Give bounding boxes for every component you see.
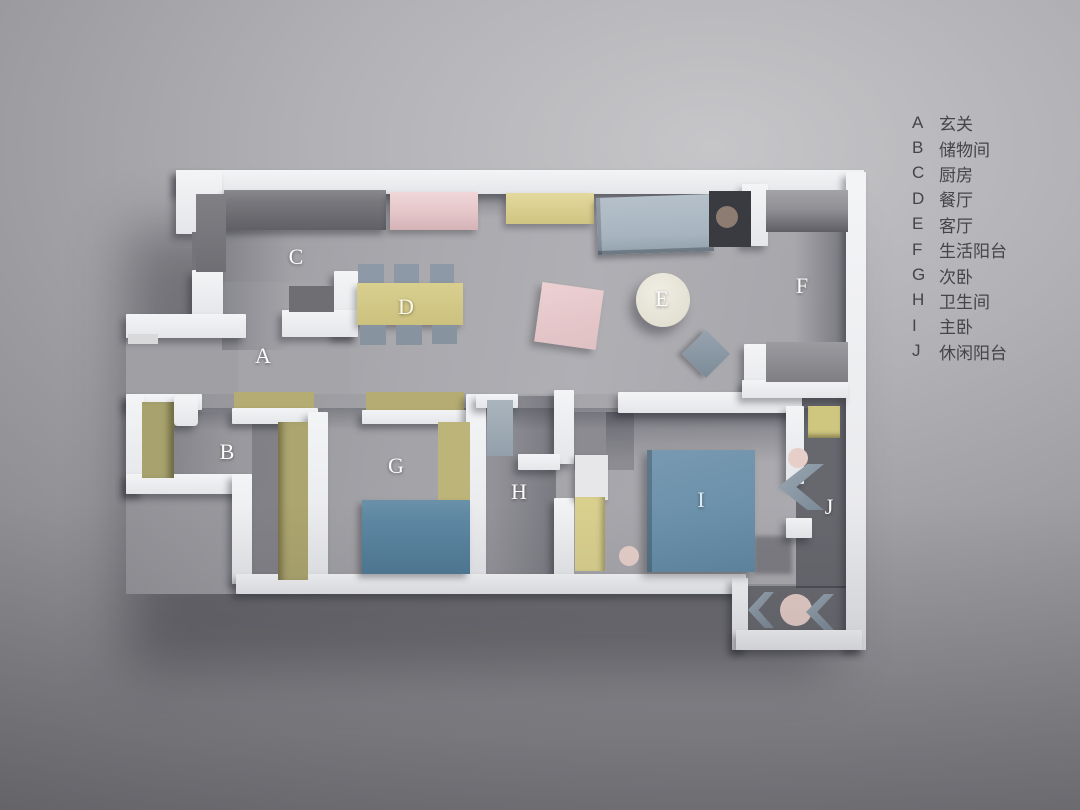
plan-label-entrance: A — [255, 343, 271, 369]
sofa — [596, 194, 714, 255]
legend-letter: E — [912, 214, 939, 234]
bed-second-bedroom — [362, 500, 470, 574]
legend-room-name: 主卧 — [939, 313, 973, 338]
legend-row: H卫生间 — [912, 288, 1007, 313]
legend-row: C厨房 — [912, 161, 1007, 186]
kitchen-sink-recess — [289, 286, 334, 312]
dining-chair — [394, 264, 419, 285]
wall-segment-bottom — [236, 574, 746, 594]
legend-room-name: 厨房 — [939, 161, 973, 186]
plan-label-bedroom2: G — [388, 453, 404, 479]
wall-segment-bedroom2-left — [308, 412, 328, 584]
wall-segment-corridor — [232, 474, 252, 584]
legend-row: J休闲阳台 — [912, 339, 1007, 364]
plan-label-leisure-balcony: J — [825, 494, 834, 520]
nightstand — [619, 546, 639, 566]
legend-row: I主卧 — [912, 313, 1007, 338]
dining-chair — [358, 264, 384, 285]
plan-label-master: I — [697, 487, 704, 513]
wall-segment-balcony-ext-bottom — [736, 630, 862, 650]
wall-post — [174, 396, 198, 426]
wall-segment-left — [192, 270, 223, 318]
wall-segment-bath-nub — [518, 454, 560, 470]
dining-chair — [360, 325, 386, 345]
wall-segment-balcony-bottom — [742, 380, 848, 398]
legend-row: F生活阳台 — [912, 237, 1007, 262]
legend-room-name: 次卧 — [939, 263, 973, 288]
cabinet-pink — [390, 192, 478, 230]
legend-room-name: 储物间 — [939, 136, 990, 161]
legend-letter: C — [912, 163, 939, 183]
floor-plan-scene: A B C D E F G H I J A玄关 B储物间 C厨房 D餐厅 E客厅… — [0, 0, 1080, 810]
storage-shelf — [142, 402, 174, 478]
legend-letter: I — [912, 316, 939, 336]
entry-step — [128, 334, 158, 344]
legend-row: B储物间 — [912, 135, 1007, 160]
legend-room-name: 餐厅 — [939, 186, 973, 211]
legend-room-name: 玄关 — [939, 110, 973, 135]
cabinet-yellow — [506, 193, 594, 224]
wall-segment-master-balcony — [786, 518, 812, 538]
room-legend: A玄关 B储物间 C厨房 D餐厅 E客厅 F生活阳台 G次卧 H卫生间 I主卧 … — [912, 110, 1007, 364]
balcony-counter — [766, 342, 848, 382]
legend-letter: J — [912, 341, 939, 361]
wall-segment-bath-right — [554, 498, 574, 584]
dining-chair — [396, 325, 422, 345]
kitchen-counter — [224, 190, 386, 230]
legend-room-name: 生活阳台 — [939, 237, 1007, 262]
bedroom2-wardrobe — [438, 422, 470, 500]
corridor-wardrobe — [278, 422, 308, 580]
rug-pink — [534, 282, 604, 350]
legend-row: G次卧 — [912, 262, 1007, 287]
master-wardrobe-yellow — [575, 497, 605, 571]
legend-room-name: 卫生间 — [939, 288, 990, 313]
plan-label-bathroom: H — [511, 479, 527, 505]
wall-segment-right — [846, 172, 866, 650]
balcony-table — [780, 594, 812, 626]
legend-row: E客厅 — [912, 212, 1007, 237]
legend-letter: B — [912, 138, 939, 158]
dining-chair — [432, 325, 457, 344]
dining-chair — [430, 264, 454, 285]
plan-label-storage: B — [220, 439, 235, 465]
plan-label-kitchen: C — [289, 244, 304, 270]
legend-row: A玄关 — [912, 110, 1007, 135]
kitchen-cabinet — [196, 194, 226, 272]
wall-segment-bath-right — [554, 390, 574, 464]
legend-row: D餐厅 — [912, 186, 1007, 211]
legend-letter: H — [912, 290, 939, 310]
legend-letter: D — [912, 189, 939, 209]
legend-room-name: 休闲阳台 — [939, 339, 1007, 364]
kitchen-peninsula — [282, 310, 358, 337]
side-table — [716, 206, 738, 228]
balcony-counter — [766, 190, 848, 232]
legend-letter: A — [912, 113, 939, 133]
master-wardrobe-upper — [575, 455, 608, 500]
floor-slab — [126, 336, 238, 398]
plan-label-life-balcony: F — [796, 273, 808, 299]
legend-room-name: 客厅 — [939, 212, 973, 237]
plan-label-dining: D — [398, 294, 414, 320]
nightstand — [788, 448, 808, 468]
plan-label-living: E — [655, 286, 668, 312]
washer — [487, 400, 513, 456]
balcony-seat-yellow — [808, 406, 840, 438]
legend-letter: F — [912, 240, 939, 260]
legend-letter: G — [912, 265, 939, 285]
